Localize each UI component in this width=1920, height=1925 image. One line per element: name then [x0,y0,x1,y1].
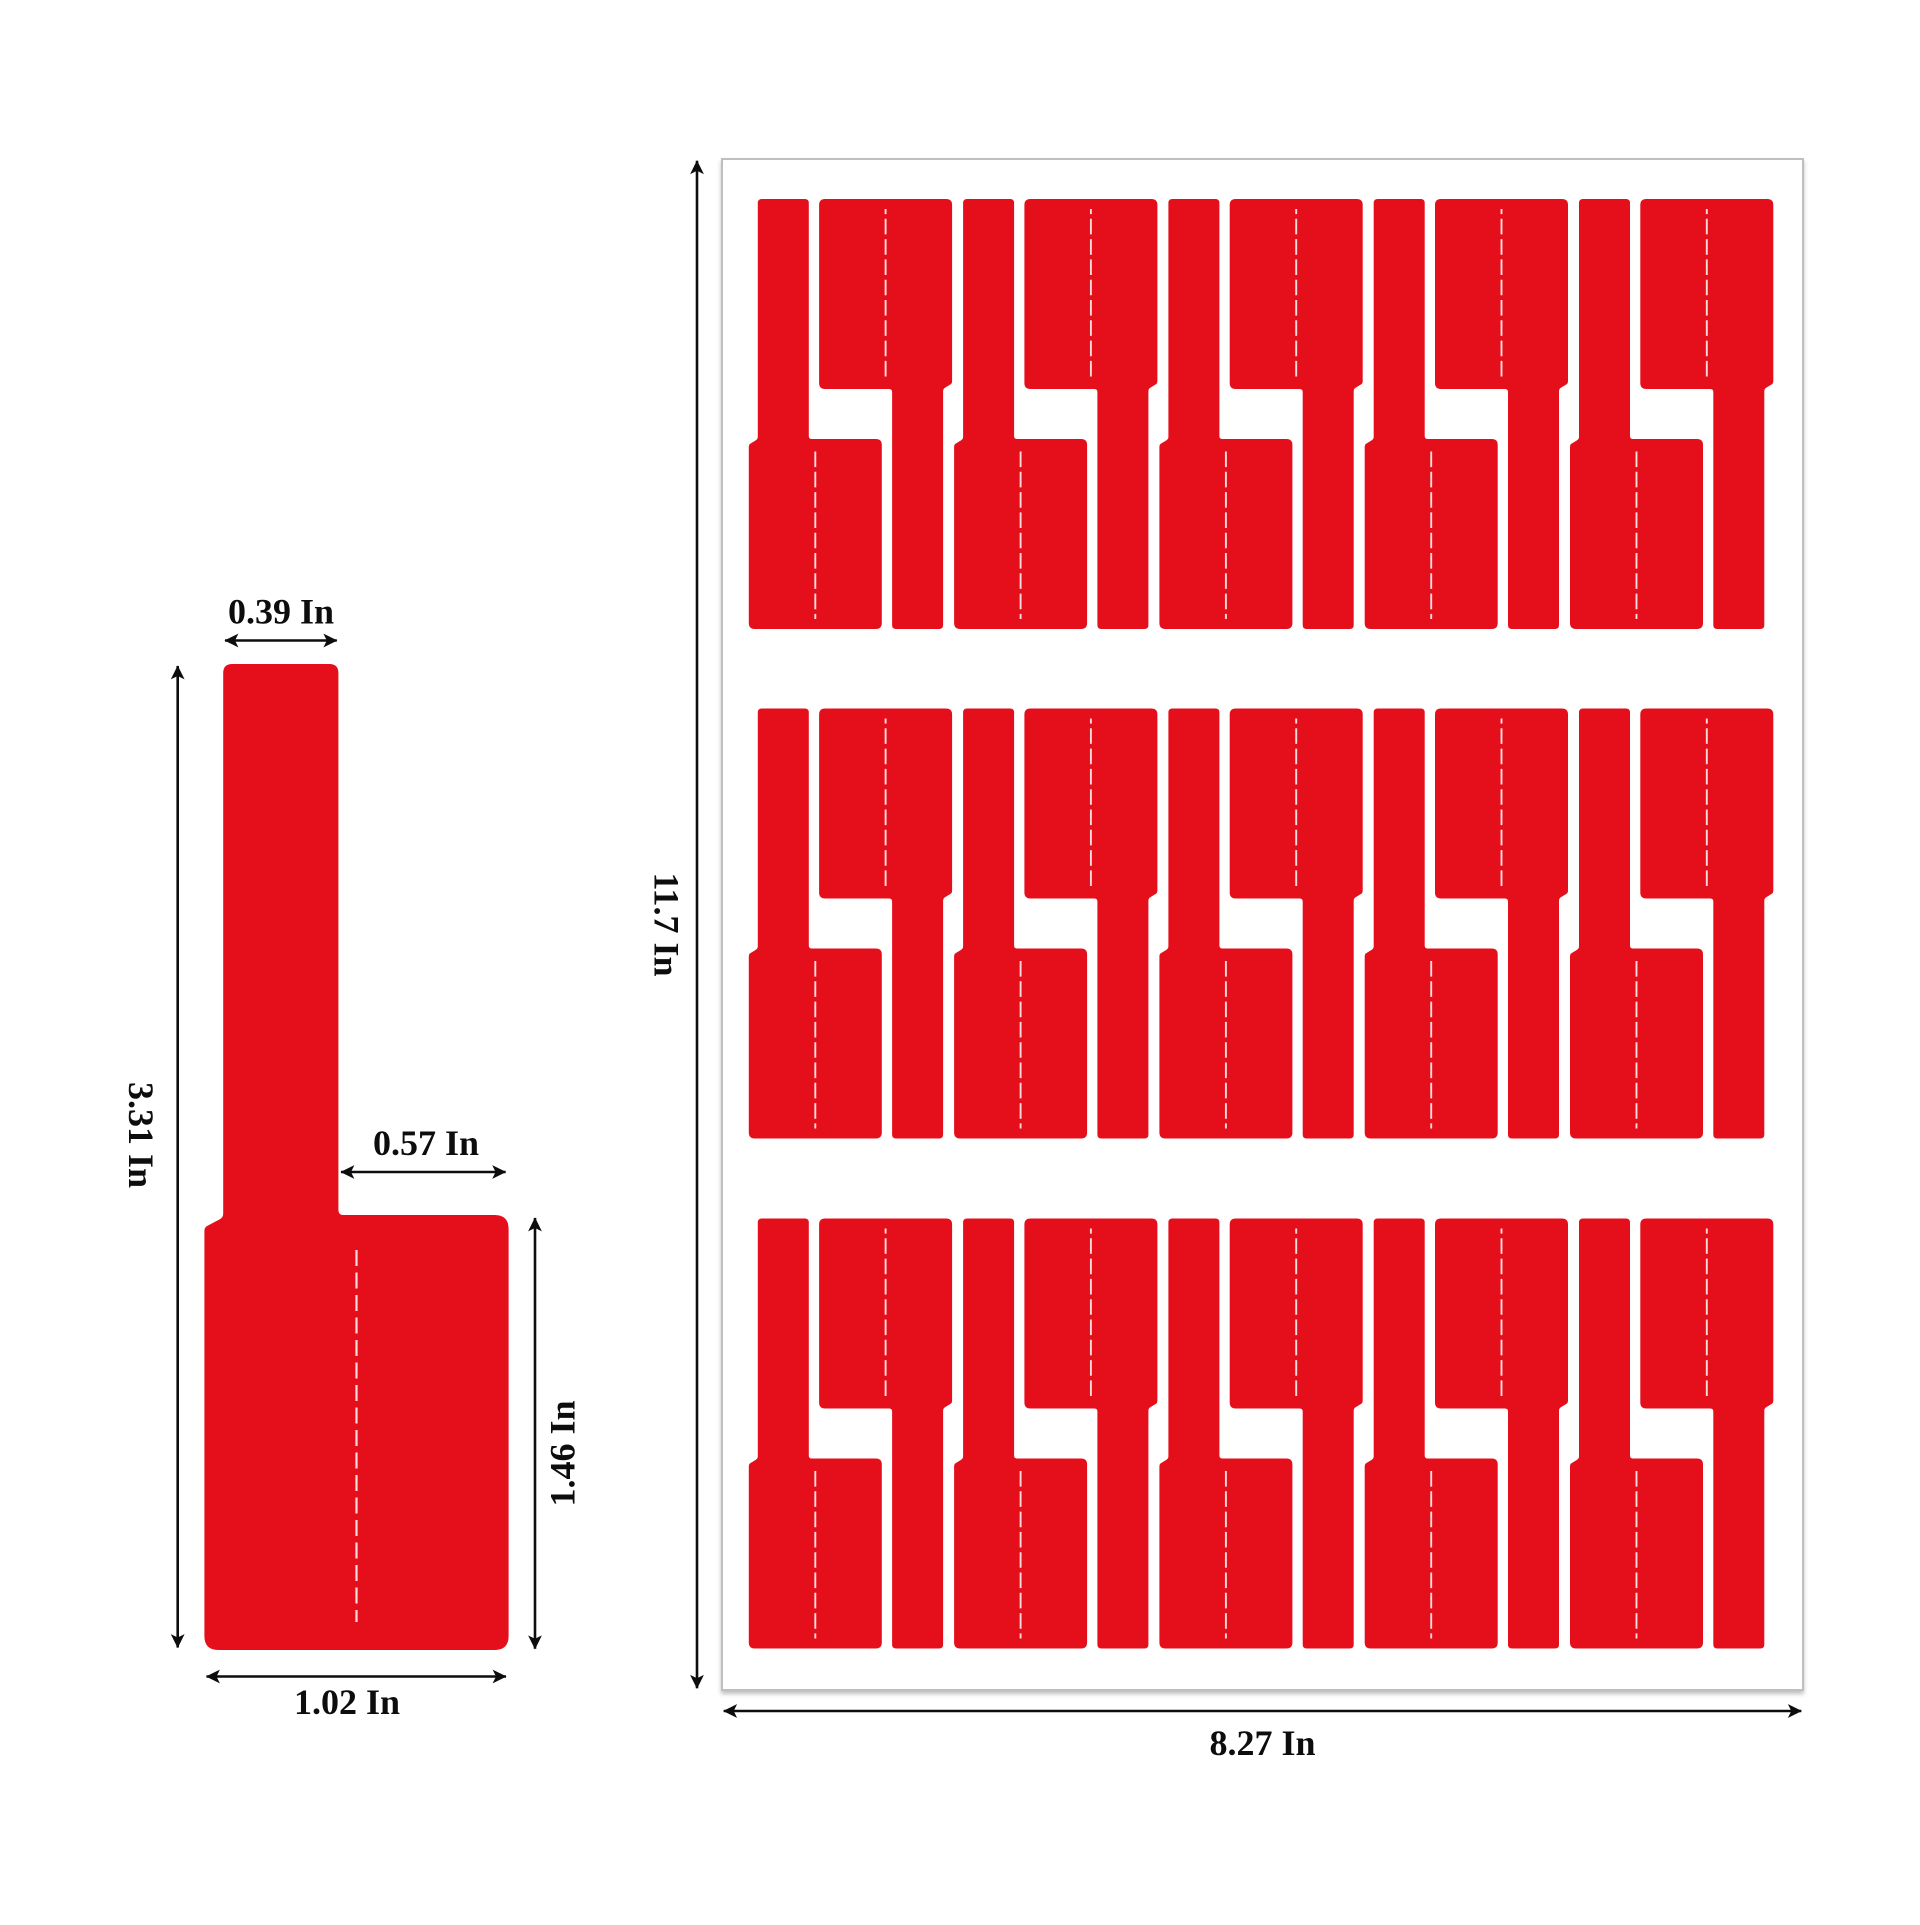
svg-text:11.7 In: 11.7 In [647,872,687,976]
svg-text:8.27 In: 8.27 In [1209,1723,1315,1763]
svg-text:3.31 In: 3.31 In [121,1082,161,1188]
svg-text:1.46 In: 1.46 In [543,1400,583,1506]
svg-text:0.39 In: 0.39 In [228,592,334,632]
svg-text:1.02 In: 1.02 In [294,1682,400,1722]
svg-text:0.57 In: 0.57 In [373,1123,479,1163]
